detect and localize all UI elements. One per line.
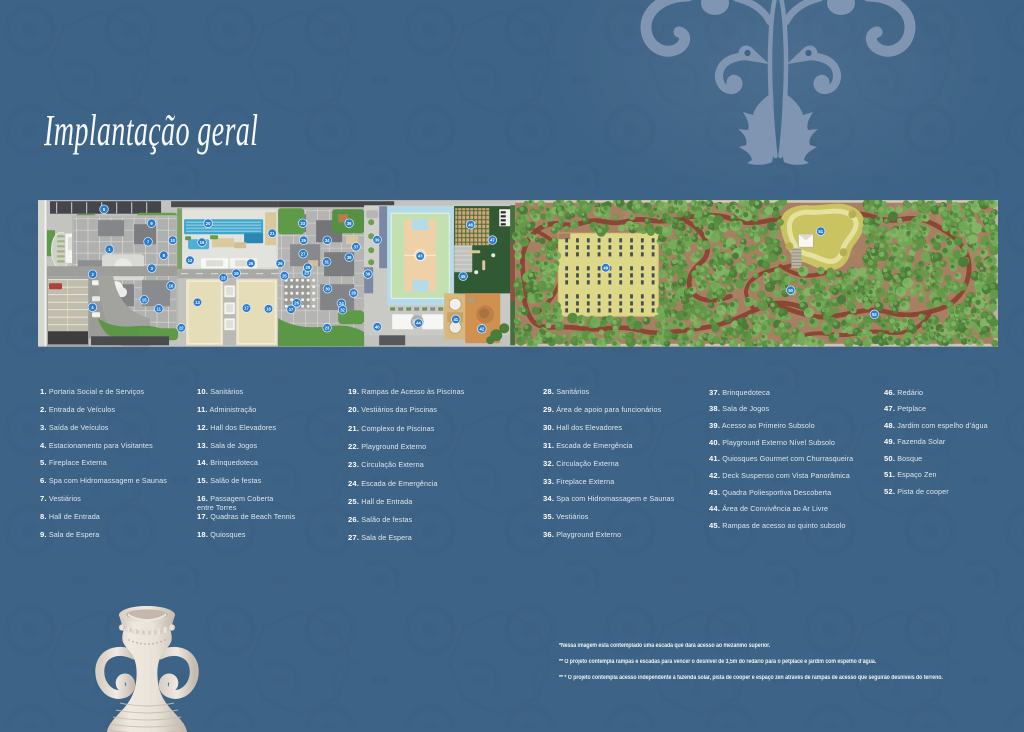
svg-text:43: 43 — [418, 254, 423, 259]
svg-text:26: 26 — [294, 300, 299, 305]
svg-text:26: 26 — [249, 261, 254, 266]
svg-text:21: 21 — [270, 231, 275, 236]
svg-text:36: 36 — [347, 221, 352, 226]
svg-text:34: 34 — [325, 238, 330, 243]
svg-text:39: 39 — [375, 237, 380, 242]
svg-text:20: 20 — [206, 221, 211, 226]
svg-text:19: 19 — [234, 271, 239, 276]
svg-text:12: 12 — [188, 258, 193, 263]
svg-text:35: 35 — [301, 238, 306, 243]
svg-text:50: 50 — [788, 288, 793, 293]
svg-text:52: 52 — [872, 312, 877, 317]
svg-text:38: 38 — [347, 255, 352, 260]
svg-text:33: 33 — [300, 221, 305, 226]
svg-text:40: 40 — [375, 324, 380, 329]
svg-text:23: 23 — [221, 275, 226, 280]
svg-text:39: 39 — [366, 272, 371, 277]
svg-text:28: 28 — [351, 291, 356, 296]
svg-text:51: 51 — [818, 229, 823, 234]
svg-text:10: 10 — [170, 238, 175, 243]
svg-text:23: 23 — [325, 325, 330, 330]
svg-text:47: 47 — [490, 238, 495, 243]
svg-text:41: 41 — [453, 317, 458, 322]
svg-text:26: 26 — [278, 261, 283, 266]
svg-text:24: 24 — [339, 301, 344, 306]
svg-text:15: 15 — [142, 297, 147, 302]
svg-text:42: 42 — [479, 326, 484, 331]
svg-text:30: 30 — [325, 286, 330, 291]
svg-text:13: 13 — [195, 300, 200, 305]
svg-text:16: 16 — [169, 283, 174, 288]
svg-text:46: 46 — [468, 222, 473, 227]
svg-text:18: 18 — [266, 306, 271, 311]
svg-text:27: 27 — [301, 251, 306, 256]
svg-text:31: 31 — [324, 259, 329, 264]
svg-text:45: 45 — [461, 274, 466, 279]
svg-text:25: 25 — [282, 273, 287, 278]
svg-text:19: 19 — [200, 240, 205, 245]
svg-text:17: 17 — [289, 307, 294, 312]
svg-text:11: 11 — [157, 306, 162, 311]
svg-text:44: 44 — [416, 321, 421, 326]
svg-text:49: 49 — [603, 265, 608, 270]
svg-text:22: 22 — [179, 325, 184, 330]
svg-text:32: 32 — [340, 307, 345, 312]
svg-text:37: 37 — [354, 244, 359, 249]
svg-text:29: 29 — [306, 265, 311, 270]
svg-text:17: 17 — [244, 306, 249, 311]
